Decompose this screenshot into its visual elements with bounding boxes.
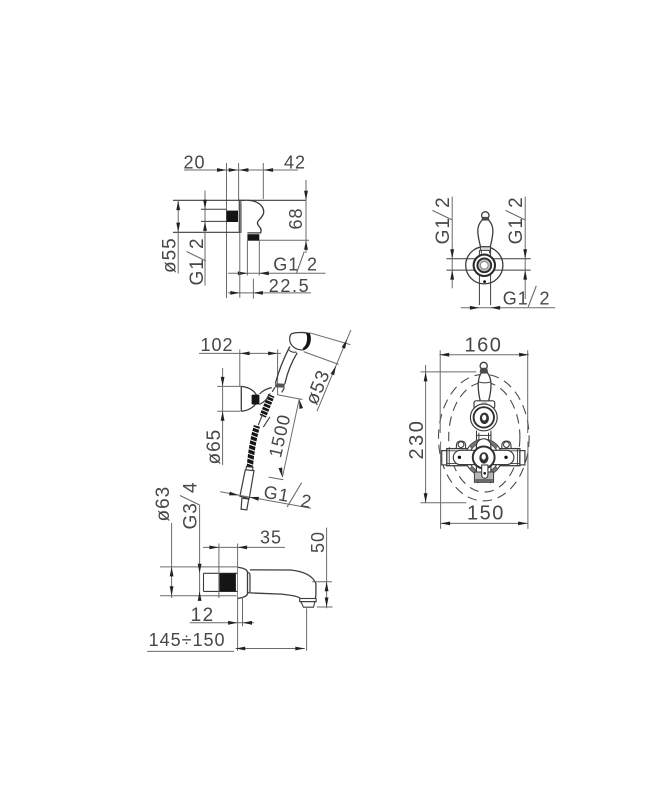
svg-text:2: 2 bbox=[540, 289, 551, 309]
svg-text:230: 230 bbox=[406, 419, 428, 460]
svg-text:35: 35 bbox=[260, 528, 282, 548]
svg-text:2: 2 bbox=[433, 196, 454, 208]
svg-text:G1: G1 bbox=[433, 217, 454, 244]
svg-text:G3: G3 bbox=[181, 502, 202, 529]
svg-text:ø55: ø55 bbox=[160, 237, 181, 273]
svg-text:2: 2 bbox=[307, 255, 318, 275]
svg-text:G1: G1 bbox=[503, 289, 529, 309]
svg-text:50: 50 bbox=[308, 531, 328, 553]
svg-text:68: 68 bbox=[286, 207, 306, 229]
svg-text:145÷150: 145÷150 bbox=[149, 630, 226, 650]
svg-text:G1: G1 bbox=[506, 217, 527, 244]
svg-text:ø63: ø63 bbox=[153, 486, 174, 522]
svg-text:102: 102 bbox=[201, 335, 234, 355]
svg-text:2: 2 bbox=[506, 196, 527, 208]
svg-text:160: 160 bbox=[465, 335, 503, 357]
svg-text:20: 20 bbox=[184, 152, 206, 172]
svg-text:ø65: ø65 bbox=[204, 429, 225, 465]
svg-text:12: 12 bbox=[191, 605, 215, 626]
svg-text:150: 150 bbox=[467, 503, 505, 525]
svg-text:4: 4 bbox=[181, 481, 202, 493]
svg-text:42: 42 bbox=[284, 152, 306, 172]
svg-text:22.5: 22.5 bbox=[269, 276, 310, 296]
svg-text:G1: G1 bbox=[187, 258, 208, 285]
svg-text:2: 2 bbox=[187, 237, 208, 249]
svg-text:G1: G1 bbox=[273, 255, 299, 275]
